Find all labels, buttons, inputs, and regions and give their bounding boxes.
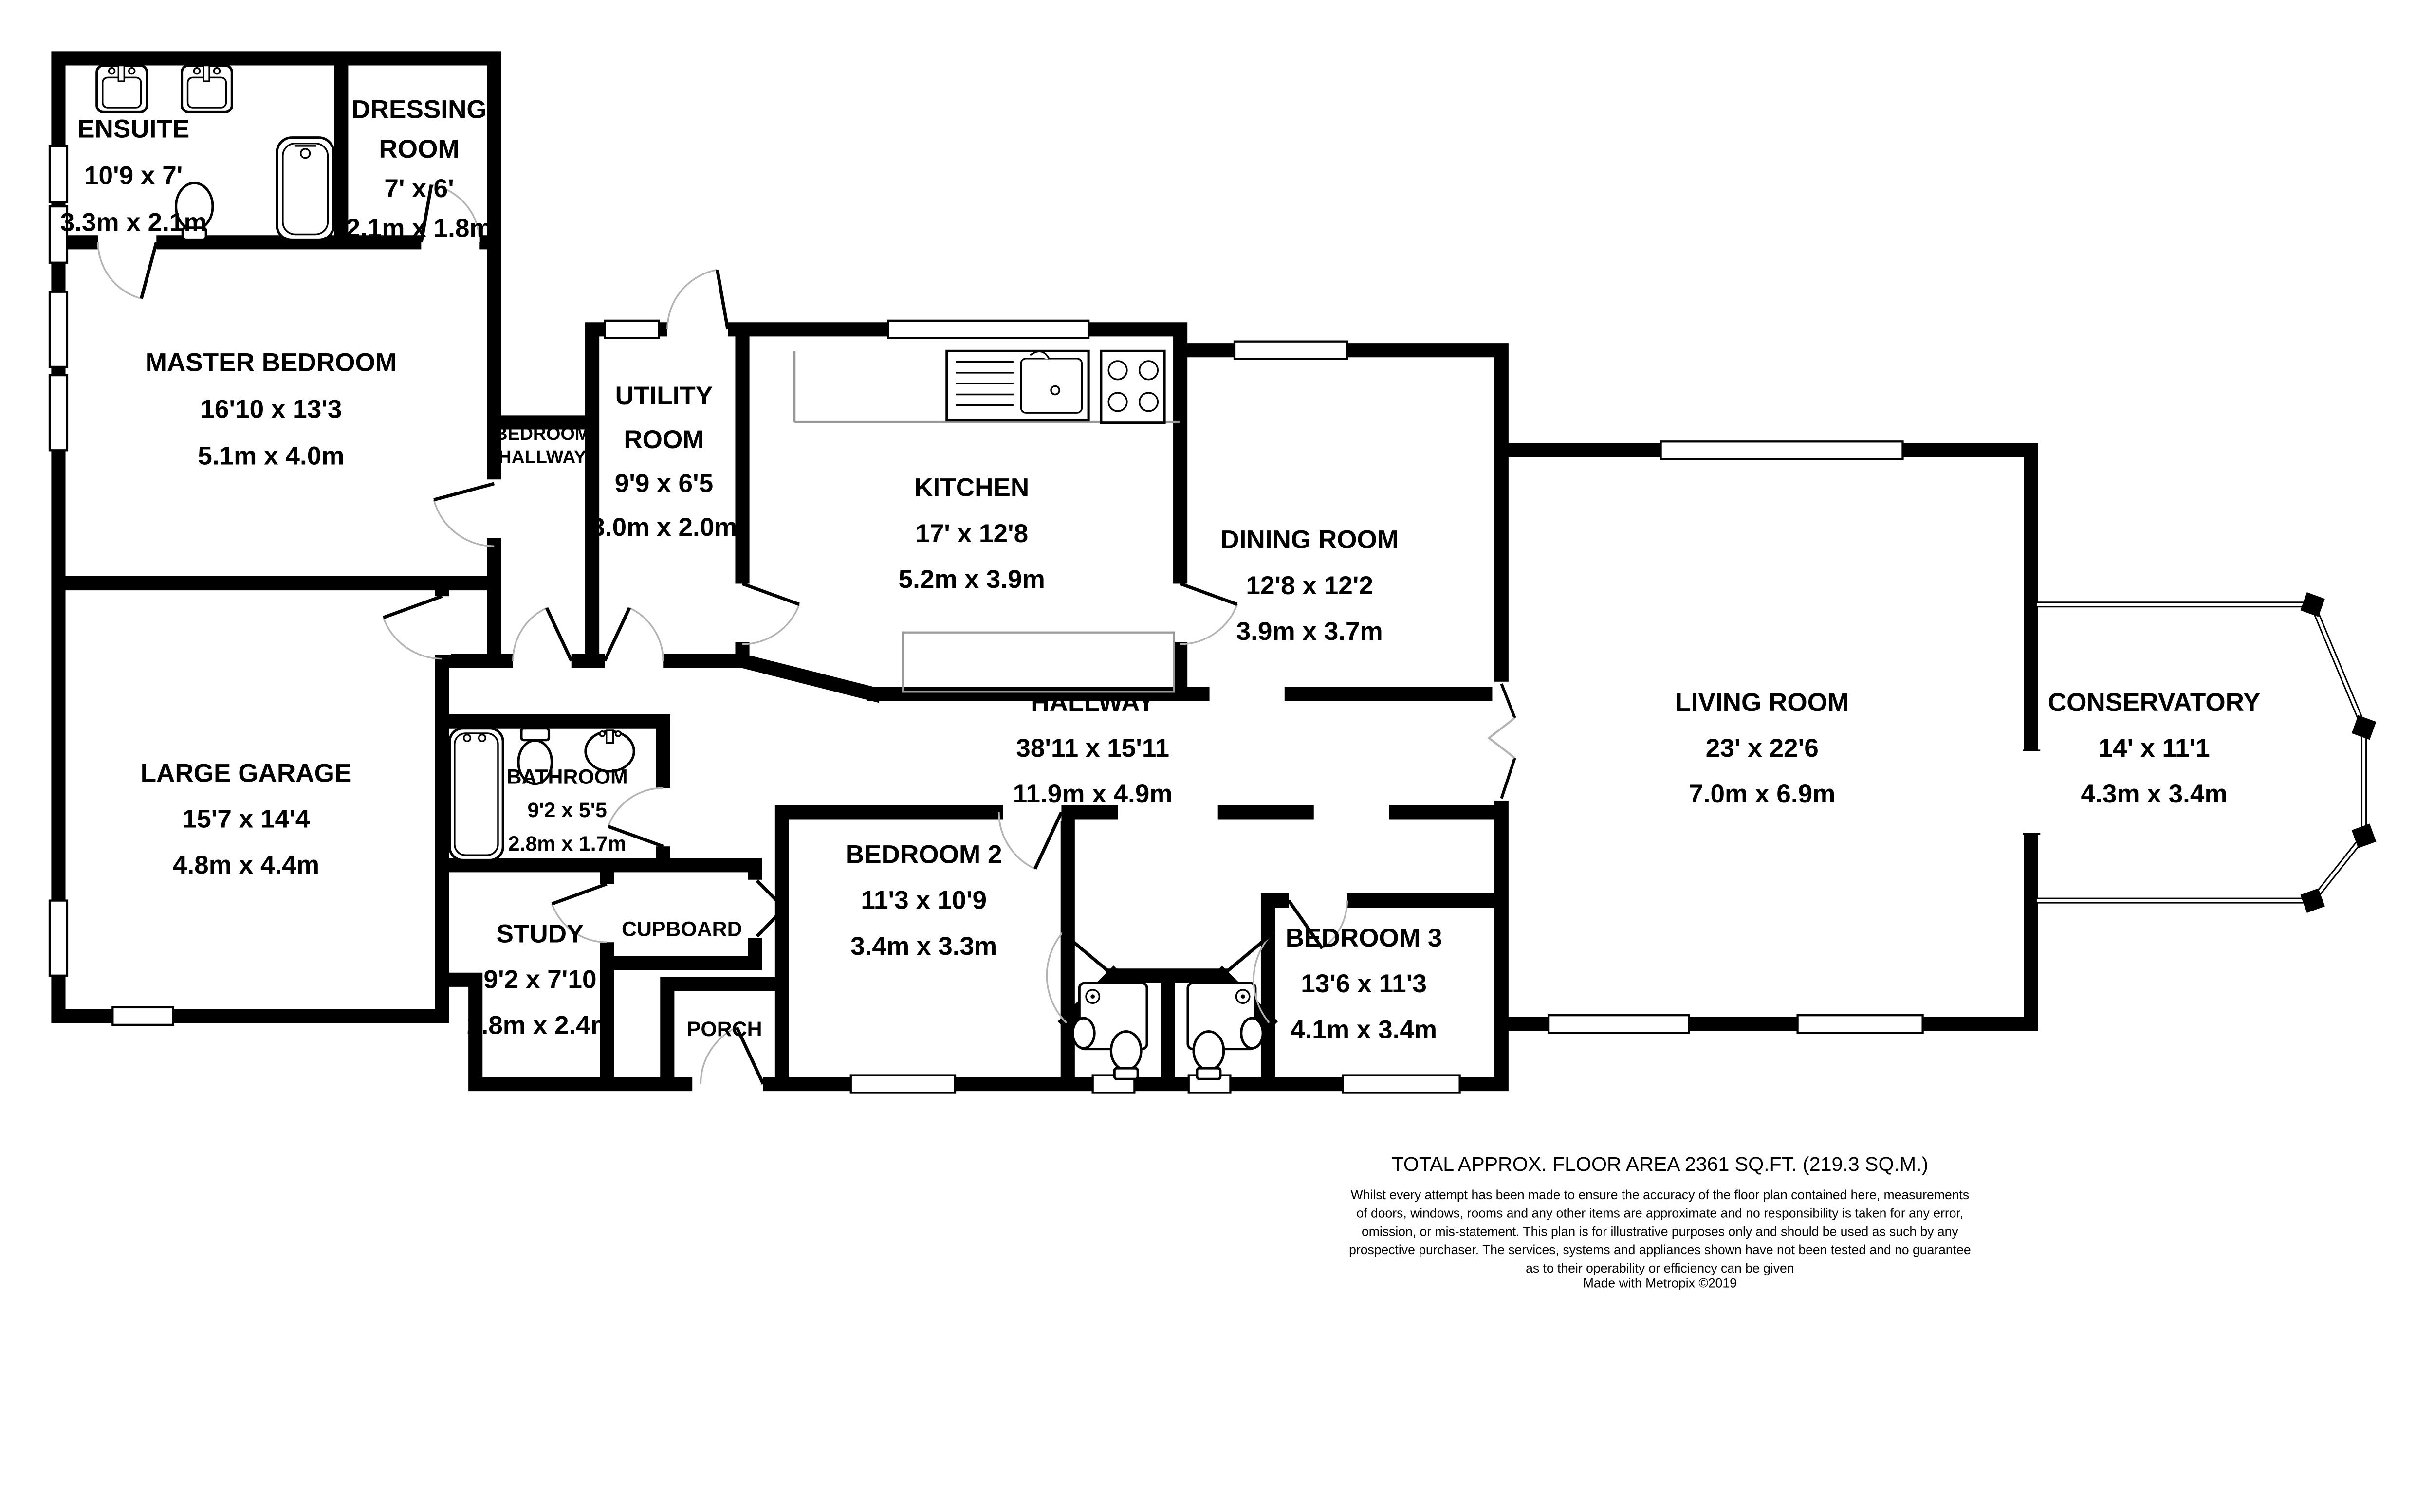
room-label-kitchen-line1: 17' x 12'8	[915, 519, 1028, 548]
room-label-living-room-line2: 7.0m x 6.9m	[1689, 780, 1835, 808]
room-label-study-line1: 9'2 x 7'10	[483, 965, 596, 994]
total-area-text: TOTAL APPROX. FLOOR AREA 2361 SQ.FT. (21…	[1392, 1153, 1929, 1175]
room-label-dining-room-line0: DINING ROOM	[1220, 526, 1399, 554]
room-label-dressing-room-line2: 7' x 6'	[384, 174, 454, 203]
room-label-kitchen-line2: 5.2m x 3.9m	[899, 565, 1045, 594]
room-label-bathroom-line0: BATHROOM	[507, 765, 628, 789]
room-label-dressing-room-line3: 2.1m x 1.8m	[346, 214, 492, 243]
disclaimer-text: Whilst every attempt has been made to en…	[1349, 1187, 1971, 1275]
kitchen-sink-icon	[947, 351, 1088, 420]
room-label-conservatory-line1: 14' x 11'1	[2099, 734, 2210, 763]
room-label-large-garage-line0: LARGE GARAGE	[141, 759, 352, 787]
shower-left-icons	[1073, 983, 1147, 1079]
room-label-bedroom-3-line0: BEDROOM 3	[1286, 924, 1442, 952]
room-label-bedroom-2-line2: 3.4m x 3.3m	[850, 932, 997, 961]
room-label-hallway-line2: 11.9m x 4.9m	[1013, 780, 1173, 808]
room-label-dressing-room-line1: ROOM	[379, 135, 459, 164]
footer: TOTAL APPROX. FLOOR AREA 2361 SQ.FT. (21…	[1349, 1153, 1971, 1291]
room-labels: ENSUITE10'9 x 7'3.3m x 2.1mDRESSINGROOM7…	[60, 95, 2261, 1044]
room-label-master-bedroom-line2: 5.1m x 4.0m	[198, 441, 344, 470]
room-label-large-garage-line2: 4.8m x 4.4m	[173, 851, 319, 879]
floorplan-svg: ENSUITE10'9 x 7'3.3m x 2.1mDRESSINGROOM7…	[0, 0, 2434, 1295]
doors	[98, 185, 1347, 1084]
room-label-bedroom-hallway-line0: BEDROOM	[494, 423, 590, 444]
room-label-bedroom-3-line2: 4.1m x 3.4m	[1291, 1015, 1437, 1044]
room-label-large-garage-line1: 15'7 x 14'4	[183, 805, 310, 834]
room-label-conservatory-line2: 4.3m x 3.4m	[2081, 780, 2228, 808]
disclaimer-line-0: Whilst every attempt has been made to en…	[1351, 1187, 1970, 1202]
room-label-bathroom-line1: 9'2 x 5'5	[528, 799, 607, 822]
ensuite-sink-icon	[97, 66, 147, 112]
disclaimer-line-1: of doors, windows, rooms and any other i…	[1356, 1206, 1963, 1221]
room-label-ensuite-line0: ENSUITE	[77, 115, 189, 144]
room-label-master-bedroom-line0: MASTER BEDROOM	[146, 348, 397, 377]
room-label-ensuite-line1: 10'9 x 7'	[84, 162, 183, 190]
room-label-kitchen-line0: KITCHEN	[914, 474, 1029, 502]
metropix-credit: Made with Metropix ©2019	[1583, 1276, 1737, 1291]
ensuite-sink-icon	[182, 66, 232, 112]
floorplan-page: ENSUITE10'9 x 7'3.3m x 2.1mDRESSINGROOM7…	[0, 0, 2434, 1295]
room-label-master-bedroom-line1: 16'10 x 13'3	[200, 395, 342, 423]
room-label-ensuite-line2: 3.3m x 2.1m	[60, 208, 207, 237]
disclaimer-line-2: omission, or mis-statement. This plan is…	[1362, 1224, 1958, 1239]
hob-icon	[1101, 351, 1164, 422]
room-label-dining-room-line1: 12'8 x 12'2	[1246, 571, 1373, 600]
room-label-living-room-line1: 23' x 22'6	[1706, 734, 1819, 763]
room-label-dressing-room-line0: DRESSING	[351, 95, 486, 124]
room-label-utility-room-line1: ROOM	[624, 425, 704, 454]
room-label-hallway-line1: 38'11 x 15'11	[1016, 734, 1169, 763]
room-label-utility-room-line3: 3.0m x 2.0m	[590, 513, 737, 542]
disclaimer-line-3: prospective purchaser. The services, sys…	[1349, 1242, 1971, 1257]
room-label-bedroom-2-line0: BEDROOM 2	[846, 840, 1002, 869]
room-label-bathroom-line2: 2.8m x 1.7m	[508, 832, 627, 856]
room-label-bedroom-3-line1: 13'6 x 11'3	[1301, 969, 1427, 998]
room-label-bedroom-hallway-line1: HALLWAY	[498, 447, 586, 467]
room-label-utility-room-line0: UTILITY	[615, 382, 713, 410]
shower-right-icons	[1188, 983, 1263, 1079]
room-label-porch-line0: PORCH	[687, 1018, 762, 1041]
bathroom-bath-icon	[450, 729, 503, 860]
room-label-hallway-line0: HALLWAY	[1031, 688, 1155, 717]
room-label-cupboard-line0: CUPBOARD	[622, 917, 742, 941]
room-label-study-line0: STUDY	[496, 919, 584, 948]
disclaimer-line-4: as to their operability or efficiency ca…	[1526, 1261, 1794, 1275]
room-label-bedroom-2-line1: 11'3 x 10'9	[861, 886, 987, 915]
ensuite-bath-icon	[277, 138, 334, 240]
room-label-dining-room-line2: 3.9m x 3.7m	[1236, 617, 1383, 646]
room-label-study-line2: 2.8m x 2.4m	[467, 1011, 613, 1040]
room-label-conservatory-line0: CONSERVATORY	[2048, 688, 2261, 717]
room-label-living-room-line0: LIVING ROOM	[1675, 688, 1849, 717]
room-label-utility-room-line2: 9'9 x 6'5	[615, 469, 713, 498]
